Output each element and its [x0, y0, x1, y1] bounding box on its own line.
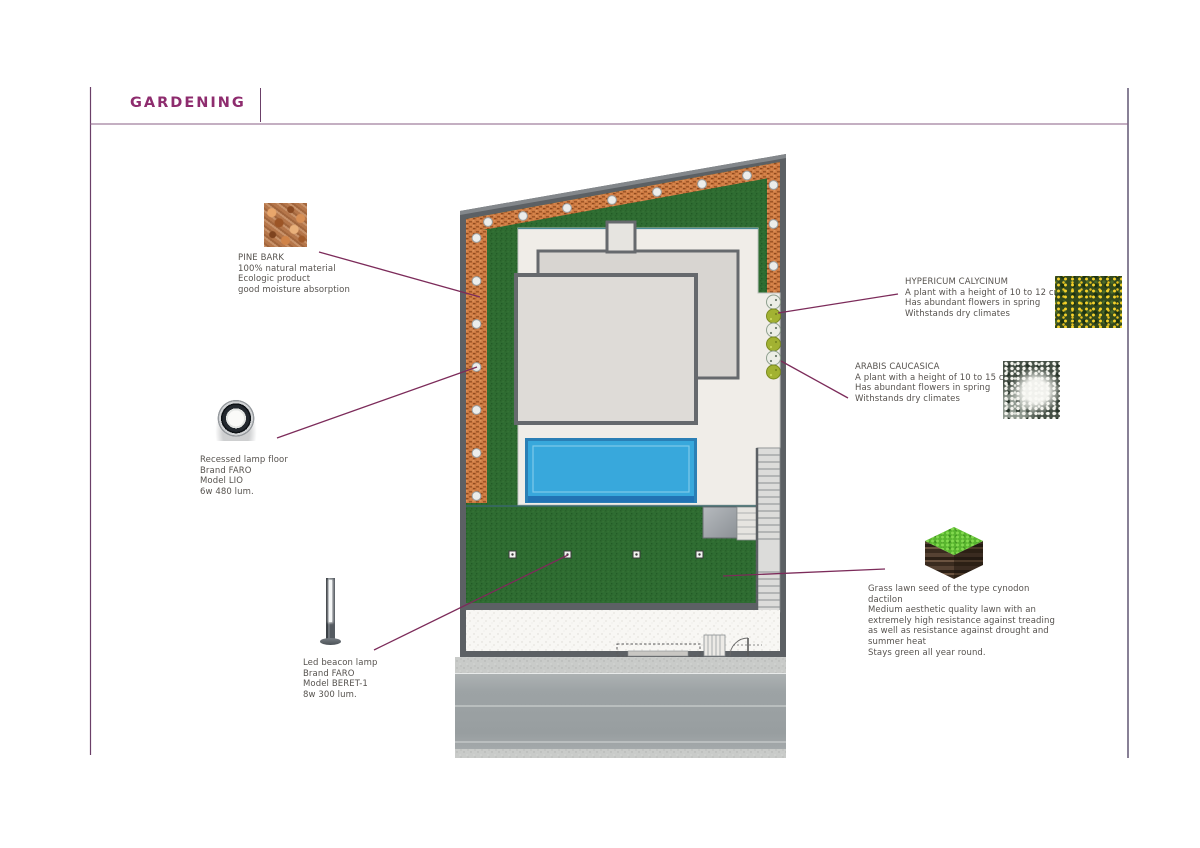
- small-steps: [737, 507, 757, 540]
- recessed-lamp-photo: [215, 399, 257, 441]
- annotation-line: summer heat: [868, 637, 1063, 648]
- beacon-lamp: [696, 551, 703, 558]
- hypericum-photo: [1055, 276, 1122, 328]
- annotation-recessed-lamp: Recessed lamp floor Brand FARO Model LIO…: [200, 455, 330, 497]
- pool-water: [528, 441, 694, 500]
- terrace-platform: [703, 507, 737, 538]
- annotation-line: 8w 300 lum.: [303, 690, 433, 701]
- annotation-line: A plant with a height of 10 to 15 cm: [855, 373, 1025, 384]
- entry-steps: [704, 635, 725, 656]
- annotation-line: Model LIO: [200, 476, 330, 487]
- led-beacon-photo: [318, 578, 343, 652]
- annotation-line: Led beacon lamp: [303, 658, 433, 669]
- annotation-line: Has abundant flowers in spring: [905, 298, 1075, 309]
- beacon-lamp: [509, 551, 516, 558]
- annotation-line: 100% natural material: [238, 264, 368, 275]
- annotation-line: Recessed lamp floor: [200, 455, 330, 466]
- gardening-sheet: GARDENING PINE BARK 100% natural materia…: [0, 0, 1200, 848]
- hypericum-plant: [767, 365, 781, 379]
- arabis-photo: [1003, 361, 1060, 419]
- roof-chimney: [607, 222, 635, 252]
- annotation-line: A plant with a height of 10 to 12 cm: [905, 288, 1075, 299]
- annotation-line: Has abundant flowers in spring: [855, 383, 1025, 394]
- annotation-line: Ecologic product: [238, 274, 368, 285]
- annotation-line: Withstands dry climates: [855, 394, 1025, 405]
- annotation-line: Grass lawn seed of the type cynodon dact…: [868, 584, 1063, 605]
- annotation-led-beacon: Led beacon lamp Brand FARO Model BERET-1…: [303, 658, 433, 700]
- leader-hypericum: [778, 294, 898, 313]
- annotation-arabis: ARABIS CAUCASICA A plant with a height o…: [855, 362, 1025, 404]
- pine-bark-photo: [264, 203, 307, 247]
- page-title: GARDENING: [130, 95, 246, 111]
- annotation-line: 6w 480 lum.: [200, 487, 330, 498]
- lawn-retaining-wall: [466, 603, 757, 610]
- annotation-line: Medium aesthetic quality lawn with an: [868, 605, 1063, 616]
- hypericum-plant: [767, 337, 781, 351]
- site-plan-drawing: [0, 0, 1200, 848]
- swimming-pool: [525, 438, 697, 503]
- annotation-line: Model BERET-1: [303, 679, 433, 690]
- annotation-title: PINE BARK: [238, 253, 368, 264]
- arabis-plant: [767, 295, 781, 309]
- grass-seed-photo: [925, 527, 983, 579]
- sidewalk-top: [455, 657, 786, 673]
- annotation-line: Brand FARO: [303, 669, 433, 680]
- annotation-pine-bark: PINE BARK 100% natural material Ecologic…: [238, 253, 368, 295]
- annotation-line: Stays green all year round.: [868, 648, 1063, 659]
- annotation-grass: Grass lawn seed of the type cynodon dact…: [868, 584, 1063, 658]
- arabis-plant: [767, 351, 781, 365]
- annotation-line: extremely high resistance against treadi…: [868, 616, 1063, 627]
- annotation-line: as well as resistance against drought an…: [868, 626, 1063, 637]
- street: [455, 657, 786, 758]
- annotation-hypericum: HYPERICUM CALYCINUM A plant with a heigh…: [905, 277, 1075, 319]
- annotation-line: Withstands dry climates: [905, 309, 1075, 320]
- leader-arabis: [781, 361, 848, 398]
- annotation-line: Brand FARO: [200, 466, 330, 477]
- building-roof-main: [516, 275, 696, 423]
- sidewalk-bottom: [455, 749, 786, 758]
- road: [455, 673, 786, 749]
- annotation-line: good moisture absorption: [238, 285, 368, 296]
- arabis-plant: [767, 323, 781, 337]
- hypericum-plant: [767, 309, 781, 323]
- leader-recessed-lamp: [277, 367, 477, 438]
- beacon-lamp: [633, 551, 640, 558]
- annotation-title: HYPERICUM CALYCINUM: [905, 277, 1075, 288]
- side-staircase: [757, 448, 780, 612]
- annotation-title: ARABIS CAUCASICA: [855, 362, 1025, 373]
- front-paving: [466, 610, 780, 651]
